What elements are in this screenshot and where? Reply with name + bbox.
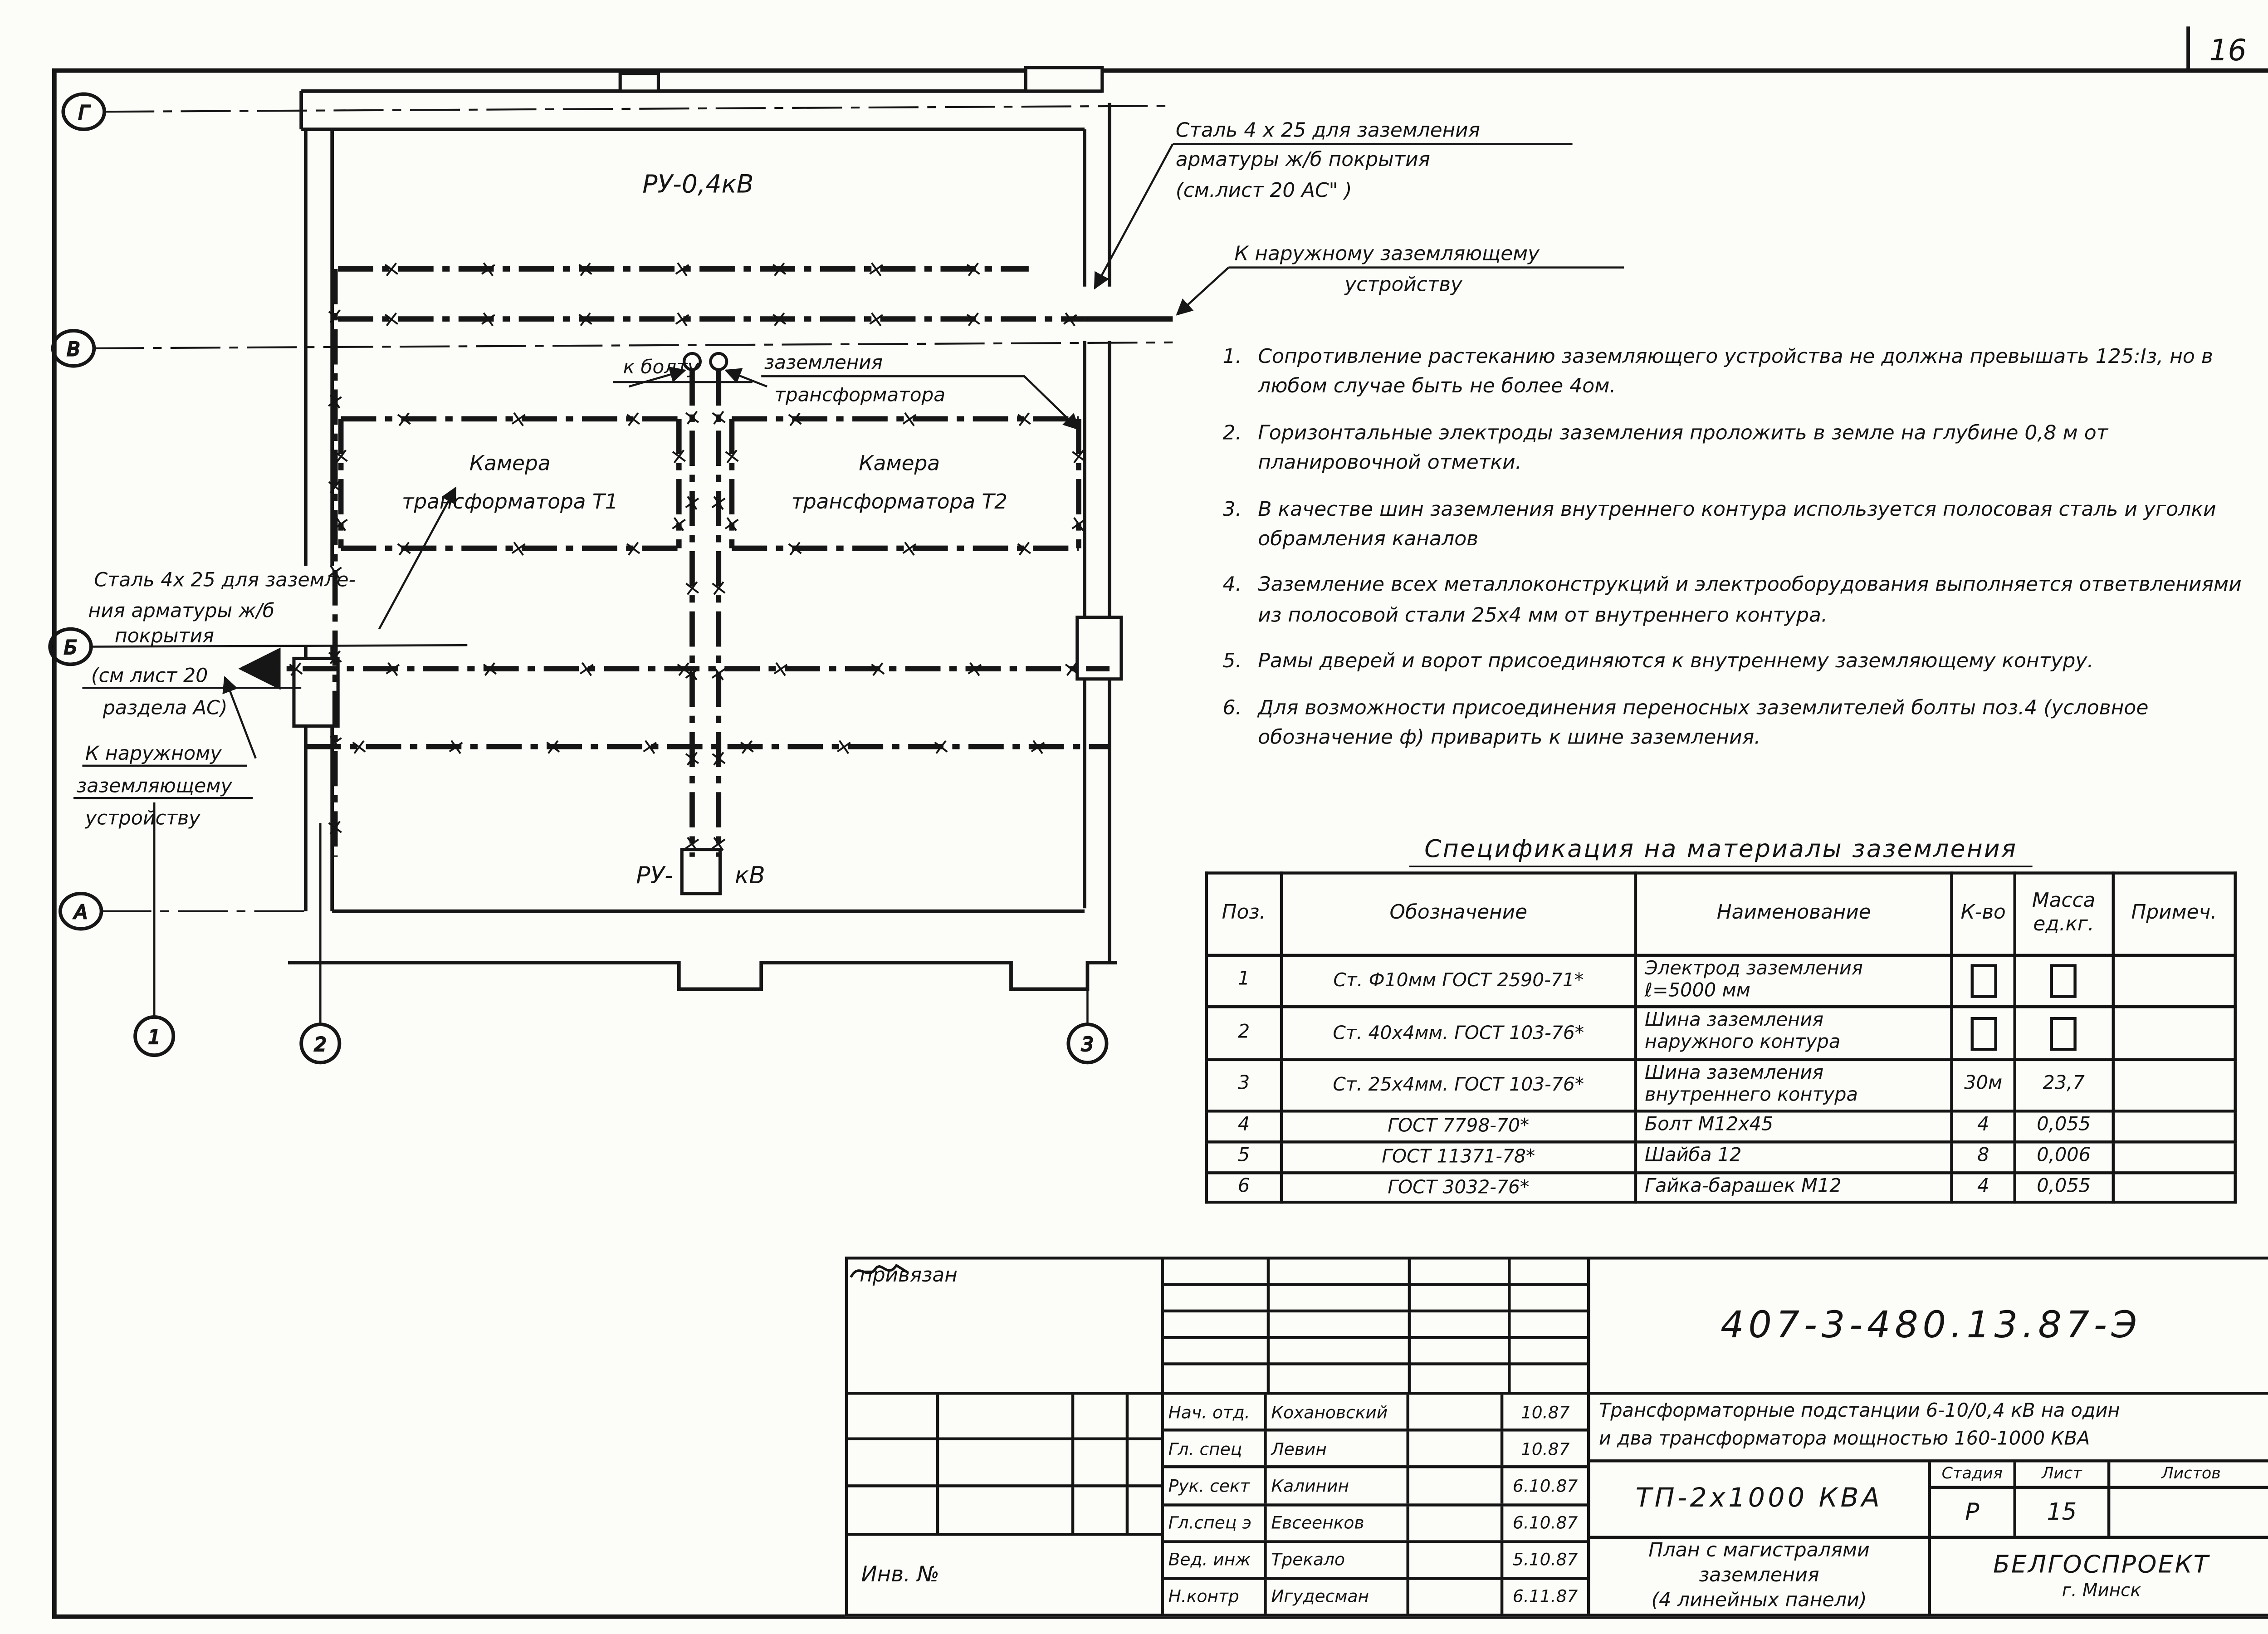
- steel-callout-right: Сталь 4 х 25 для заземления: [1176, 118, 1480, 142]
- note-number: 4.: [1223, 571, 1258, 631]
- grounding-bus-x-mark: ×: [707, 659, 730, 687]
- revision-grid-cell: [1511, 1260, 1587, 1286]
- grounding-bus-x-mark: ×: [324, 302, 346, 330]
- empty-grid-cell: [1074, 1441, 1129, 1487]
- signature-role: Гл. спец: [1164, 1432, 1267, 1466]
- specification-table: Спецификация на материалы заземления Поз…: [1205, 835, 2237, 1204]
- document-number: 407-3-480.13.87-Э: [1590, 1260, 2268, 1394]
- empty-value-box: [1970, 1017, 1996, 1051]
- signature-row: Н.контрИгудесман6.11.87: [1164, 1580, 1587, 1614]
- grounding-bus-x-mark: ×: [1067, 509, 1090, 538]
- revision-grid: [1164, 1260, 1587, 1395]
- grounding-bus-x-mark: ×: [1068, 442, 1090, 470]
- grounding-bus-x-mark: ×: [865, 305, 888, 333]
- revision-grid-cell: [1270, 1312, 1411, 1339]
- grounding-bus-x-mark: ×: [574, 255, 596, 283]
- spec-cell-mass: 0,055: [2014, 1111, 2113, 1142]
- spec-row: 1Ст. Ф10мм ГОСТ 2590-71*Электрод заземле…: [1207, 955, 2235, 1008]
- project-description: Трансформаторные подстанции 6-10/0,4 кВ …: [1590, 1394, 2268, 1462]
- steel-callout-left: раздела АС): [103, 697, 228, 719]
- empty-value-box: [2050, 1017, 2077, 1051]
- grounding-bus-x-mark: ×: [324, 387, 347, 415]
- note-number: 1.: [1223, 342, 1258, 402]
- grounding-bus-x-mark: ×: [668, 442, 690, 470]
- spec-row: 4ГОСТ 7798-70*Болт М12х4540,055: [1207, 1111, 2235, 1142]
- grounding-bus-x-mark: ×: [574, 305, 596, 333]
- signature-scribble-icon: [848, 1260, 913, 1283]
- empty-value-box: [2050, 964, 2077, 998]
- signature-row: Гл. спецЛевин10.87: [1164, 1432, 1587, 1469]
- revision-grid-cell: [1411, 1286, 1510, 1312]
- note-item: 1.Сопротивление растеканию заземляющего …: [1223, 342, 2252, 402]
- spec-cell-note: [2113, 955, 2235, 1008]
- revision-grid-cell: [1270, 1260, 1411, 1286]
- grounding-bus-x-mark: ×: [708, 574, 729, 602]
- axis-row-label: А: [73, 901, 88, 923]
- grounding-bus-x-mark: ×: [477, 255, 500, 283]
- signature-name: Калинин: [1267, 1469, 1409, 1503]
- grounding-bus-x-mark: ×: [681, 659, 704, 687]
- general-notes: 1.Сопротивление растеканию заземляющего …: [1223, 342, 2252, 769]
- grounding-bus-x-mark: ×: [1059, 305, 1082, 333]
- signature-name: Левин: [1267, 1432, 1409, 1466]
- signature-row: Гл.спец эЕвсеенков6.10.87: [1164, 1506, 1587, 1543]
- title-block-empty-grid: [848, 1395, 1161, 1536]
- spec-cell-qty: [1952, 955, 2014, 1008]
- spec-cell-pos: 2: [1207, 1008, 1281, 1060]
- signature-role: Гл.спец э: [1164, 1506, 1267, 1540]
- grounding-bus-x-mark: ×: [963, 655, 986, 683]
- steel-callout-left: ния арматуры ж/б: [88, 600, 274, 622]
- grounding-bus-x-mark: ×: [867, 655, 889, 683]
- external-ground-callout-left: К наружному: [85, 742, 222, 765]
- axis-col-label: 3: [1081, 1033, 1094, 1055]
- revision-grid-cell: [1164, 1365, 1270, 1392]
- grounding-bus-x-mark: ×: [381, 655, 404, 683]
- note-number: 2.: [1223, 419, 1258, 479]
- stage-value: Р: [1931, 1488, 2016, 1535]
- grounding-bus-x-mark: ×: [708, 744, 729, 772]
- empty-grid-cell: [939, 1395, 1074, 1441]
- spec-row: 5ГОСТ 11371-78*Шайба 1280,006: [1207, 1142, 2235, 1172]
- grounding-bus-x-mark: ×: [285, 655, 307, 683]
- organization-city: г. Минск: [2062, 1580, 2141, 1601]
- revision-grid-cell: [1164, 1339, 1270, 1365]
- axis-row-label: В: [67, 338, 80, 360]
- grounding-bus-x-mark: ×: [671, 305, 694, 333]
- grounding-bus-x-mark: ×: [1013, 534, 1035, 562]
- note-item: 2.Горизонтальные электроды заземления пр…: [1223, 419, 2252, 479]
- grounding-bus-x-mark: ×: [381, 255, 402, 283]
- spec-cell-pos: 3: [1207, 1059, 1281, 1111]
- spec-cell-name: Болт М12х45: [1636, 1111, 1952, 1142]
- title-block: привязан Инв. № Нач. отд.Кохановский10.8…: [845, 1257, 2268, 1617]
- signature-name: Трекало: [1267, 1543, 1409, 1577]
- sheet-title-line: План с магистралями: [1648, 1538, 1870, 1564]
- grounding-bus-x-mark: ×: [324, 813, 346, 841]
- signature-role: Вед. инж: [1164, 1543, 1267, 1577]
- empty-value-box: [1970, 964, 1996, 998]
- sheet-label: Лист: [2016, 1462, 2110, 1488]
- room-label-ru-empty: кВ: [735, 862, 765, 889]
- grounding-bus-x-mark: ×: [681, 574, 703, 602]
- revision-grid-cell: [1411, 1260, 1510, 1286]
- spec-cell-designation: ГОСТ 11371-78*: [1281, 1142, 1636, 1172]
- empty-grid-cell: [1129, 1441, 1161, 1487]
- note-item: 3.В качестве шин заземления внутреннего …: [1223, 494, 2252, 554]
- spec-cell-qty: [1952, 1008, 2014, 1060]
- spec-cell-note: [2113, 1111, 2235, 1142]
- chamber-t1-label: Камера: [469, 451, 551, 475]
- chamber-t2-label: трансформатора Т2: [791, 489, 1007, 514]
- revision-grid-cell: [1270, 1286, 1411, 1312]
- grounding-bus-x-mark: ×: [324, 473, 346, 500]
- revision-grid-cell: [1164, 1260, 1270, 1286]
- revision-grid-cell: [1411, 1339, 1510, 1365]
- grounding-bus-x-mark: ×: [768, 255, 790, 283]
- sheet-paper: 16 Г В Б А 1 2 3: [0, 0, 2268, 1634]
- note-text: Сопротивление растеканию заземляющего ус…: [1258, 342, 2251, 402]
- grounding-bus-x-mark: ×: [708, 403, 729, 431]
- spec-cell-note: [2113, 1142, 2235, 1172]
- spec-row: 3Ст. 25х4мм. ГОСТ 103-76*Шина заземления…: [1207, 1059, 2235, 1111]
- note-item: 4.Заземление всех металлоконструкций и э…: [1223, 571, 2252, 631]
- grounding-bus-x-mark: ×: [1013, 405, 1035, 433]
- spec-cell-mass: 0,055: [2014, 1172, 2113, 1203]
- room-label-ru04: РУ-0,4кВ: [642, 169, 753, 198]
- empty-grid-cell: [939, 1441, 1074, 1487]
- grounding-bus-x-mark: ×: [381, 305, 402, 333]
- organization: БЕЛГОСПРОЕКТ г. Минск: [1931, 1538, 2268, 1614]
- grounding-bus-x-mark: ×: [639, 733, 661, 761]
- chamber-t1-label: трансформатора Т1: [402, 489, 618, 514]
- grounding-bus-x-mark: ×: [324, 643, 346, 671]
- grounding-bus-x-mark: ×: [963, 305, 984, 333]
- revision-grid-cell: [1164, 1286, 1270, 1312]
- revision-grid-cell: [1511, 1339, 1587, 1365]
- grounding-bus-x-mark: ×: [671, 255, 694, 283]
- note-item: 6.Для возможности присоединения переносн…: [1223, 693, 2252, 753]
- signature-role: Рук. сект: [1164, 1469, 1267, 1503]
- bolt-callout: трансформатора: [774, 383, 945, 406]
- note-text: Рамы дверей и ворот присоединяются к вну…: [1258, 647, 2251, 677]
- signature-mark: [1409, 1395, 1503, 1429]
- spec-row: 6ГОСТ 3032-76*Гайка-барашек М1240,055: [1207, 1172, 2235, 1203]
- signature-date: 6.11.87: [1503, 1586, 1587, 1607]
- signature-name: Евсеенков: [1267, 1506, 1409, 1540]
- signature-row: Вед. инжТрекало5.10.87: [1164, 1543, 1587, 1580]
- object-label: ТП-2х1000 КВА: [1590, 1462, 1928, 1538]
- sheet-title: План с магистралями заземления (4 линейн…: [1590, 1538, 1928, 1614]
- grounding-bus-x-mark: ×: [393, 405, 415, 433]
- stage-label: Стадия: [1931, 1462, 2016, 1488]
- axis-col-label: 1: [148, 1026, 161, 1048]
- signature-mark: [1409, 1469, 1503, 1503]
- spec-column-header: Наименование: [1636, 873, 1952, 955]
- bolt-callout: заземления: [764, 351, 883, 373]
- axis-row-label: Б: [64, 636, 77, 659]
- axis-row-label: Г: [78, 101, 91, 123]
- spec-cell-designation: Ст. 40х4мм. ГОСТ 103-76*: [1281, 1008, 1636, 1060]
- organization-name: БЕЛГОСПРОЕКТ: [1993, 1551, 2210, 1580]
- spec-cell-note: [2113, 1008, 2235, 1060]
- note-text: Для возможности присоединения переносных…: [1258, 693, 2251, 753]
- spec-cell-qty: 8: [1952, 1142, 2014, 1172]
- note-number: 6.: [1223, 693, 1258, 753]
- signature-date: 10.87: [1503, 1438, 1587, 1459]
- empty-grid-cell: [1129, 1487, 1161, 1533]
- grounding-bus-x-mark: ×: [542, 733, 564, 760]
- grounding-bus-x-mark: ×: [784, 405, 806, 433]
- empty-grid-cell: [848, 1441, 939, 1487]
- stage-sheet-table: Стадия Лист Листов Р 15: [1931, 1462, 2268, 1538]
- grounding-bus-x-mark: ×: [768, 305, 790, 333]
- grounding-bus-x-mark: ×: [348, 733, 370, 760]
- grounding-bus-x-mark: ×: [1026, 733, 1049, 761]
- spec-column-header: Примеч.: [2113, 873, 2235, 955]
- grounding-bus-x-mark: ×: [324, 728, 347, 756]
- note-number: 5.: [1223, 647, 1258, 677]
- sheets-label: Листов: [2110, 1462, 2268, 1488]
- spec-cell-designation: ГОСТ 7798-70*: [1281, 1111, 1636, 1142]
- grounding-bus-x-mark: ×: [622, 405, 644, 433]
- grounding-bus-x-mark: ×: [736, 733, 758, 760]
- empty-grid-cell: [939, 1487, 1074, 1533]
- grounding-bus-x-mark: ×: [681, 489, 704, 517]
- project-description-line: и два трансформатора мощностью 160-1000 …: [1599, 1425, 2263, 1453]
- grounding-bus-x-mark: ×: [784, 534, 806, 562]
- grounding-bus-x-mark: ×: [330, 509, 352, 538]
- empty-grid-cell: [848, 1487, 939, 1533]
- note-text: Горизонтальные электроды заземления прол…: [1258, 419, 2251, 479]
- spec-column-header: Обозначение: [1281, 873, 1636, 955]
- spec-cell-mass: [2014, 955, 2113, 1008]
- revision-grid-cell: [1270, 1365, 1411, 1392]
- revision-grid-cell: [1511, 1312, 1587, 1339]
- grounding-bus-x-mark: ×: [681, 829, 704, 857]
- spec-column-header: Поз.: [1207, 873, 1281, 955]
- spec-cell-qty: 30м: [1952, 1059, 2014, 1111]
- grounding-bus-x-mark: ×: [865, 255, 888, 283]
- grounding-bus-x-mark: ×: [393, 534, 415, 562]
- signature-mark: [1409, 1543, 1503, 1577]
- spec-row: 2Ст. 40х4мм. ГОСТ 103-76*Шина заземления…: [1207, 1008, 2235, 1060]
- steel-callout-left: (см лист 20: [91, 664, 208, 687]
- steel-callout-right: арматуры ж/б покрытия: [1176, 148, 1430, 171]
- signature-mark: [1409, 1580, 1503, 1614]
- room-label-ru-empty: РУ-: [636, 862, 673, 889]
- scanned-drawing-sheet: 16 Г В Б А 1 2 3: [0, 0, 2268, 1634]
- grounding-bus-x-mark: ×: [898, 534, 921, 563]
- empty-grid-cell: [848, 1395, 939, 1441]
- project-description-line: Трансформаторные подстанции 6-10/0,4 кВ …: [1599, 1397, 2263, 1425]
- signature-date: 6.10.87: [1503, 1512, 1587, 1533]
- empty-grid-cell: [1074, 1395, 1129, 1441]
- spec-cell-qty: 4: [1952, 1172, 2014, 1203]
- grounding-bus-x-mark: ×: [930, 733, 952, 760]
- spec-cell-qty: 4: [1952, 1111, 2014, 1142]
- revision-grid-cell: [1511, 1286, 1587, 1312]
- steel-callout-left: Сталь 4х 25 для заземле-: [94, 569, 356, 592]
- steel-callout-right: (см.лист 20 АС" ): [1176, 179, 1352, 202]
- signature-name: Игудесман: [1267, 1580, 1409, 1614]
- spec-cell-pos: 5: [1207, 1142, 1281, 1172]
- revision-grid-cell: [1270, 1339, 1411, 1365]
- grounding-bus-x-mark: ×: [477, 305, 500, 333]
- spec-cell-pos: 6: [1207, 1172, 1281, 1203]
- external-ground-callout-left: заземляющему: [76, 774, 232, 797]
- sheet-title-line: (4 линейных панели): [1651, 1589, 1867, 1614]
- external-ground-callout-left: устройству: [84, 807, 200, 830]
- grounding-bus-x-mark: ×: [681, 744, 703, 772]
- ground-bolt-icon: [710, 353, 727, 370]
- revision-grid-cell: [1511, 1365, 1587, 1392]
- grounding-bus-x-mark: ×: [479, 655, 501, 683]
- signature-name: Кохановский: [1267, 1395, 1409, 1429]
- grounding-bus-x-mark: ×: [769, 655, 792, 683]
- spec-cell-name: Шина заземления наружного контура: [1636, 1008, 1952, 1060]
- grounding-bus-x-mark: ×: [963, 255, 984, 283]
- revision-grid-cell: [1164, 1312, 1270, 1339]
- signature-role: Нач. отд.: [1164, 1395, 1267, 1429]
- signature-mark: [1409, 1432, 1503, 1466]
- spec-cell-pos: 1: [1207, 955, 1281, 1008]
- grounding-bus-x-mark: ×: [507, 405, 530, 433]
- axis-col-label: 2: [314, 1033, 327, 1055]
- signature-date: 10.87: [1503, 1401, 1587, 1422]
- empty-grid-cell: [1129, 1395, 1161, 1441]
- grounding-bus-x-mark: ×: [507, 534, 530, 563]
- spec-cell-name: Шайба 12: [1636, 1142, 1952, 1172]
- grounding-bus-x-mark: ×: [622, 534, 644, 562]
- note-item: 5.Рамы дверей и ворот присоединяются к в…: [1223, 647, 2252, 677]
- page-number: 16: [2209, 34, 2246, 68]
- spec-column-header: К-во: [1952, 873, 2014, 955]
- voltage-placeholder-box: [682, 850, 720, 894]
- signature-date: 6.10.87: [1503, 1476, 1587, 1496]
- signature-row: Рук. сектКалинин6.10.87: [1164, 1469, 1587, 1506]
- inventory-number-label: Инв. №: [848, 1536, 1161, 1614]
- spec-cell-name: Шина заземления внутреннего контура: [1636, 1059, 1952, 1111]
- signature-row: Нач. отд.Кохановский10.87: [1164, 1395, 1587, 1432]
- spec-cell-name: Электрод заземления ℓ=5000 мм: [1636, 955, 1952, 1008]
- external-ground-callout-right: К наружному заземляющему: [1234, 242, 1540, 265]
- external-ground-callout-right: устройству: [1344, 273, 1463, 296]
- spec-cell-mass: 23,7: [2014, 1059, 2113, 1111]
- note-text: Заземление всех металлоконструкций и эле…: [1258, 571, 2251, 631]
- grounding-bus-x-mark: ×: [330, 442, 352, 470]
- sheet-title-line: заземления: [1699, 1563, 1819, 1589]
- spec-cell-note: [2113, 1059, 2235, 1111]
- chamber-t2-label: Камера: [859, 451, 940, 475]
- bolt-callout: к болту: [623, 356, 699, 378]
- grounding-bus-x-mark: ×: [681, 403, 703, 431]
- spec-cell-note: [2113, 1172, 2235, 1203]
- sheet-value: 15: [2016, 1488, 2110, 1535]
- revision-grid-cell: [1411, 1365, 1510, 1392]
- spec-cell-designation: ГОСТ 3032-76*: [1281, 1172, 1636, 1203]
- grounding-bus-x-mark: ×: [898, 405, 921, 433]
- signature-rows: Нач. отд.Кохановский10.87Гл. спецЛевин10…: [1164, 1395, 1587, 1614]
- spec-cell-mass: [2014, 1008, 2113, 1060]
- empty-grid-cell: [1074, 1487, 1129, 1533]
- note-text: В качестве шин заземления внутреннего ко…: [1258, 494, 2251, 554]
- note-number: 3.: [1223, 494, 1258, 554]
- specification-title: Спецификация на материалы заземления: [1205, 835, 2237, 863]
- spec-cell-name: Гайка-барашек М12: [1636, 1172, 1952, 1203]
- spec-cell-designation: Ст. Ф10мм ГОСТ 2590-71*: [1281, 955, 1636, 1008]
- steel-callout-left: покрытия: [115, 625, 214, 647]
- spec-cell-mass: 0,006: [2014, 1142, 2113, 1172]
- revision-grid-cell: [1411, 1312, 1510, 1339]
- grounding-bus-x-mark: ×: [721, 442, 743, 470]
- spec-column-header: Масса ед.кг.: [2014, 873, 2113, 955]
- signature-role: Н.контр: [1164, 1580, 1267, 1614]
- signature-date: 5.10.87: [1503, 1550, 1587, 1570]
- spec-cell-pos: 4: [1207, 1111, 1281, 1142]
- grounding-bus-x-mark: ×: [445, 733, 467, 761]
- signature-mark: [1409, 1506, 1503, 1540]
- grounding-bus-x-mark: ×: [576, 655, 598, 683]
- grounding-bus-x-mark: ×: [833, 733, 855, 761]
- grounding-bus-x-mark: ×: [1061, 655, 1083, 683]
- sheets-value: [2110, 1488, 2268, 1535]
- spec-cell-designation: Ст. 25х4мм. ГОСТ 103-76*: [1281, 1059, 1636, 1111]
